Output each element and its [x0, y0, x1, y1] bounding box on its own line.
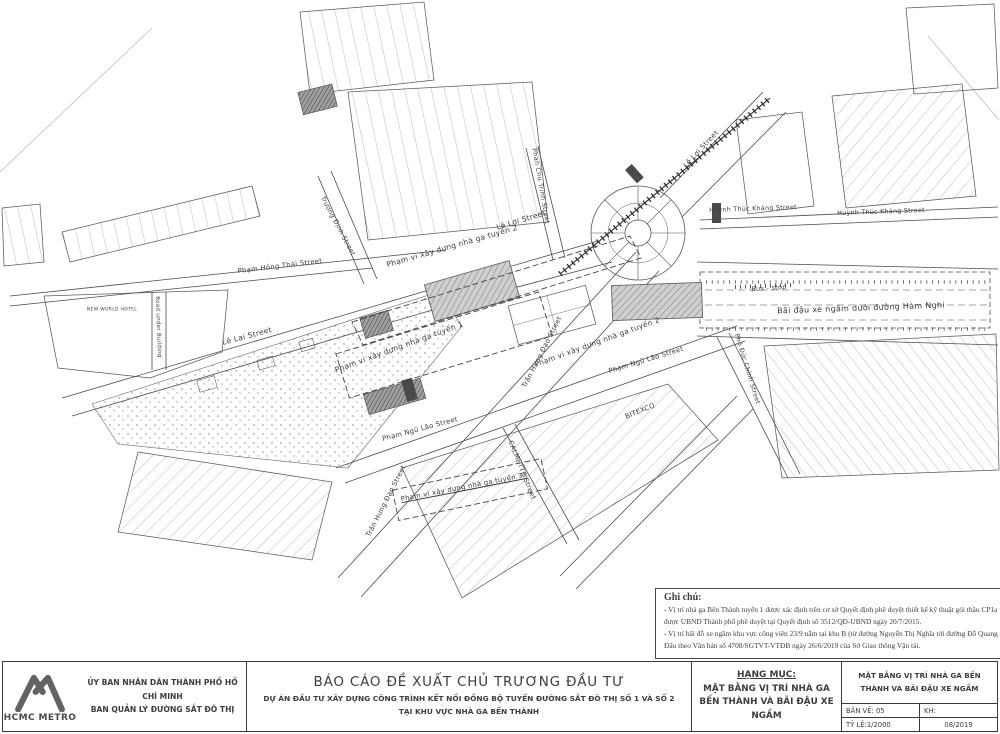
hang-muc-cell: HẠNG MỤC: MẶT BẰNG VỊ TRÍ NHÀ GA BẾN THÀ…: [691, 662, 841, 731]
site-plan-map: Trương Định StreetPhạm Hồng Thái StreetL…: [0, 0, 1000, 656]
agency-line-1: ỦY BAN NHÂN DÂN THÀNH PHỐ HỒ CHÍ MINH: [83, 676, 242, 703]
site-plan-drawing: [0, 0, 1000, 656]
report-title: BÁO CÁO ĐỀ XUẤT CHỦ TRƯƠNG ĐẦU TƯ: [314, 674, 625, 690]
scale-date-row: TỶ LỆ:1/2000 08/2019: [842, 717, 997, 731]
underground-parking-ham-nghi: [700, 272, 990, 329]
bus-stop-marks: [735, 285, 792, 287]
notes-box: Ghi chú: - Vị trí nhà ga Bến Thành tuyến…: [655, 588, 1000, 659]
drawing-info-cell: MẶT BẰNG VỊ TRÍ NHÀ GA BẾN THÀNH VÀ BÃI …: [841, 662, 997, 731]
logo-text: HCMC METRO: [4, 713, 77, 723]
project-line-1: DỰ ÁN ĐẦU TƯ XÂY DỰNG CÔNG TRÌNH KẾT NỐI…: [263, 693, 674, 706]
agency-name: ỦY BAN NHÂN DÂN THÀNH PHỐ HỒ CHÍ MINH BA…: [83, 676, 246, 717]
hang-muc-label: HẠNG MỤC:: [737, 670, 796, 680]
line1-station-box: [611, 282, 702, 320]
drawing-number-row: BẢN VẼ: 05 KH:: [842, 704, 997, 717]
date-field: 08/2019: [920, 718, 997, 731]
title-block: HCMC METRO ỦY BAN NHÂN DÂN THÀNH PHỐ HỒ …: [2, 661, 998, 732]
notes-title: Ghi chú:: [664, 592, 1000, 603]
ban-ve-field: BẢN VẼ: 05: [842, 704, 920, 717]
owner-cell: HCMC METRO ỦY BAN NHÂN DÂN THÀNH PHỐ HỒ …: [3, 662, 246, 731]
project-cell: BÁO CÁO ĐỀ XUẤT CHỦ TRƯƠNG ĐẦU TƯ DỰ ÁN …: [246, 662, 691, 731]
kh-field: KH:: [920, 704, 997, 717]
notes-line-2: - Vị trí bãi đỗ xe ngầm khu vực công viê…: [664, 628, 1000, 652]
agency-line-2: BAN QUẢN LÝ ĐƯỜNG SẮT ĐÔ THỊ: [83, 703, 242, 717]
hang-muc-value: MẶT BẰNG VỊ TRÍ NHÀ GA BẾN THÀNH VÀ BÃI …: [698, 683, 835, 724]
hcmc-metro-logo: HCMC METRO: [3, 670, 77, 723]
hcmc-metro-logo-icon: [13, 670, 67, 712]
drawing-title: MẶT BẰNG VỊ TRÍ NHÀ GA BẾN THÀNH VÀ BÃI …: [842, 662, 997, 704]
scale-field: TỶ LỆ:1/2000: [842, 718, 920, 731]
project-line-2: TẠI KHU VỰC NHÀ GA BẾN THÀNH: [399, 706, 539, 719]
line2-station-box: [424, 261, 519, 322]
notes-line-1: - Vị trí nhà ga Bến Thành tuyến 1 được x…: [664, 604, 1000, 628]
metro-line1-track: [560, 98, 770, 274]
drawing-sheet: { "title_block": { "logo_text": "HCMC ME…: [0, 0, 1000, 734]
